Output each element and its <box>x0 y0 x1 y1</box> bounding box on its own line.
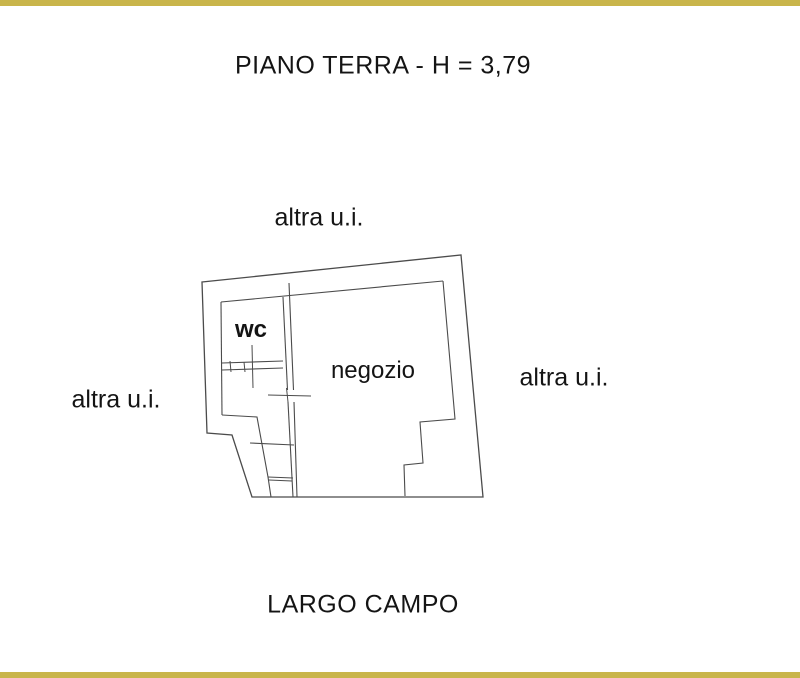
inner-wall-left <box>221 302 222 415</box>
wc-door-line <box>252 345 253 388</box>
negozio-door-line <box>268 395 311 396</box>
partition-left-lower <box>288 402 293 497</box>
room-label-wc: wc <box>235 318 267 342</box>
street-name-label: LARGO CAMPO <box>267 593 459 618</box>
floor-plan-drawing <box>0 0 800 678</box>
small-room-bottom <box>268 477 293 478</box>
adjacent-unit-label-top: altra u.i. <box>275 206 364 231</box>
adjacent-unit-label-left: altra u.i. <box>72 388 161 413</box>
partition-left-upper <box>283 297 288 390</box>
partition-right-lower <box>294 402 297 497</box>
floor-plan-page: PIANO TERRA - H = 3,79 wc <box>0 0 800 678</box>
inner-wall-right-steps <box>404 281 455 496</box>
room-label-negozio: negozio <box>331 359 415 383</box>
partition-right-upper <box>289 283 294 390</box>
wc-door-jamb-right <box>244 362 245 372</box>
small-room-top <box>250 443 294 445</box>
lower-step-line <box>269 480 292 481</box>
inner-wall-top <box>221 281 443 302</box>
corridor-wall <box>222 415 271 497</box>
adjacent-unit-label-right: altra u.i. <box>520 366 609 391</box>
